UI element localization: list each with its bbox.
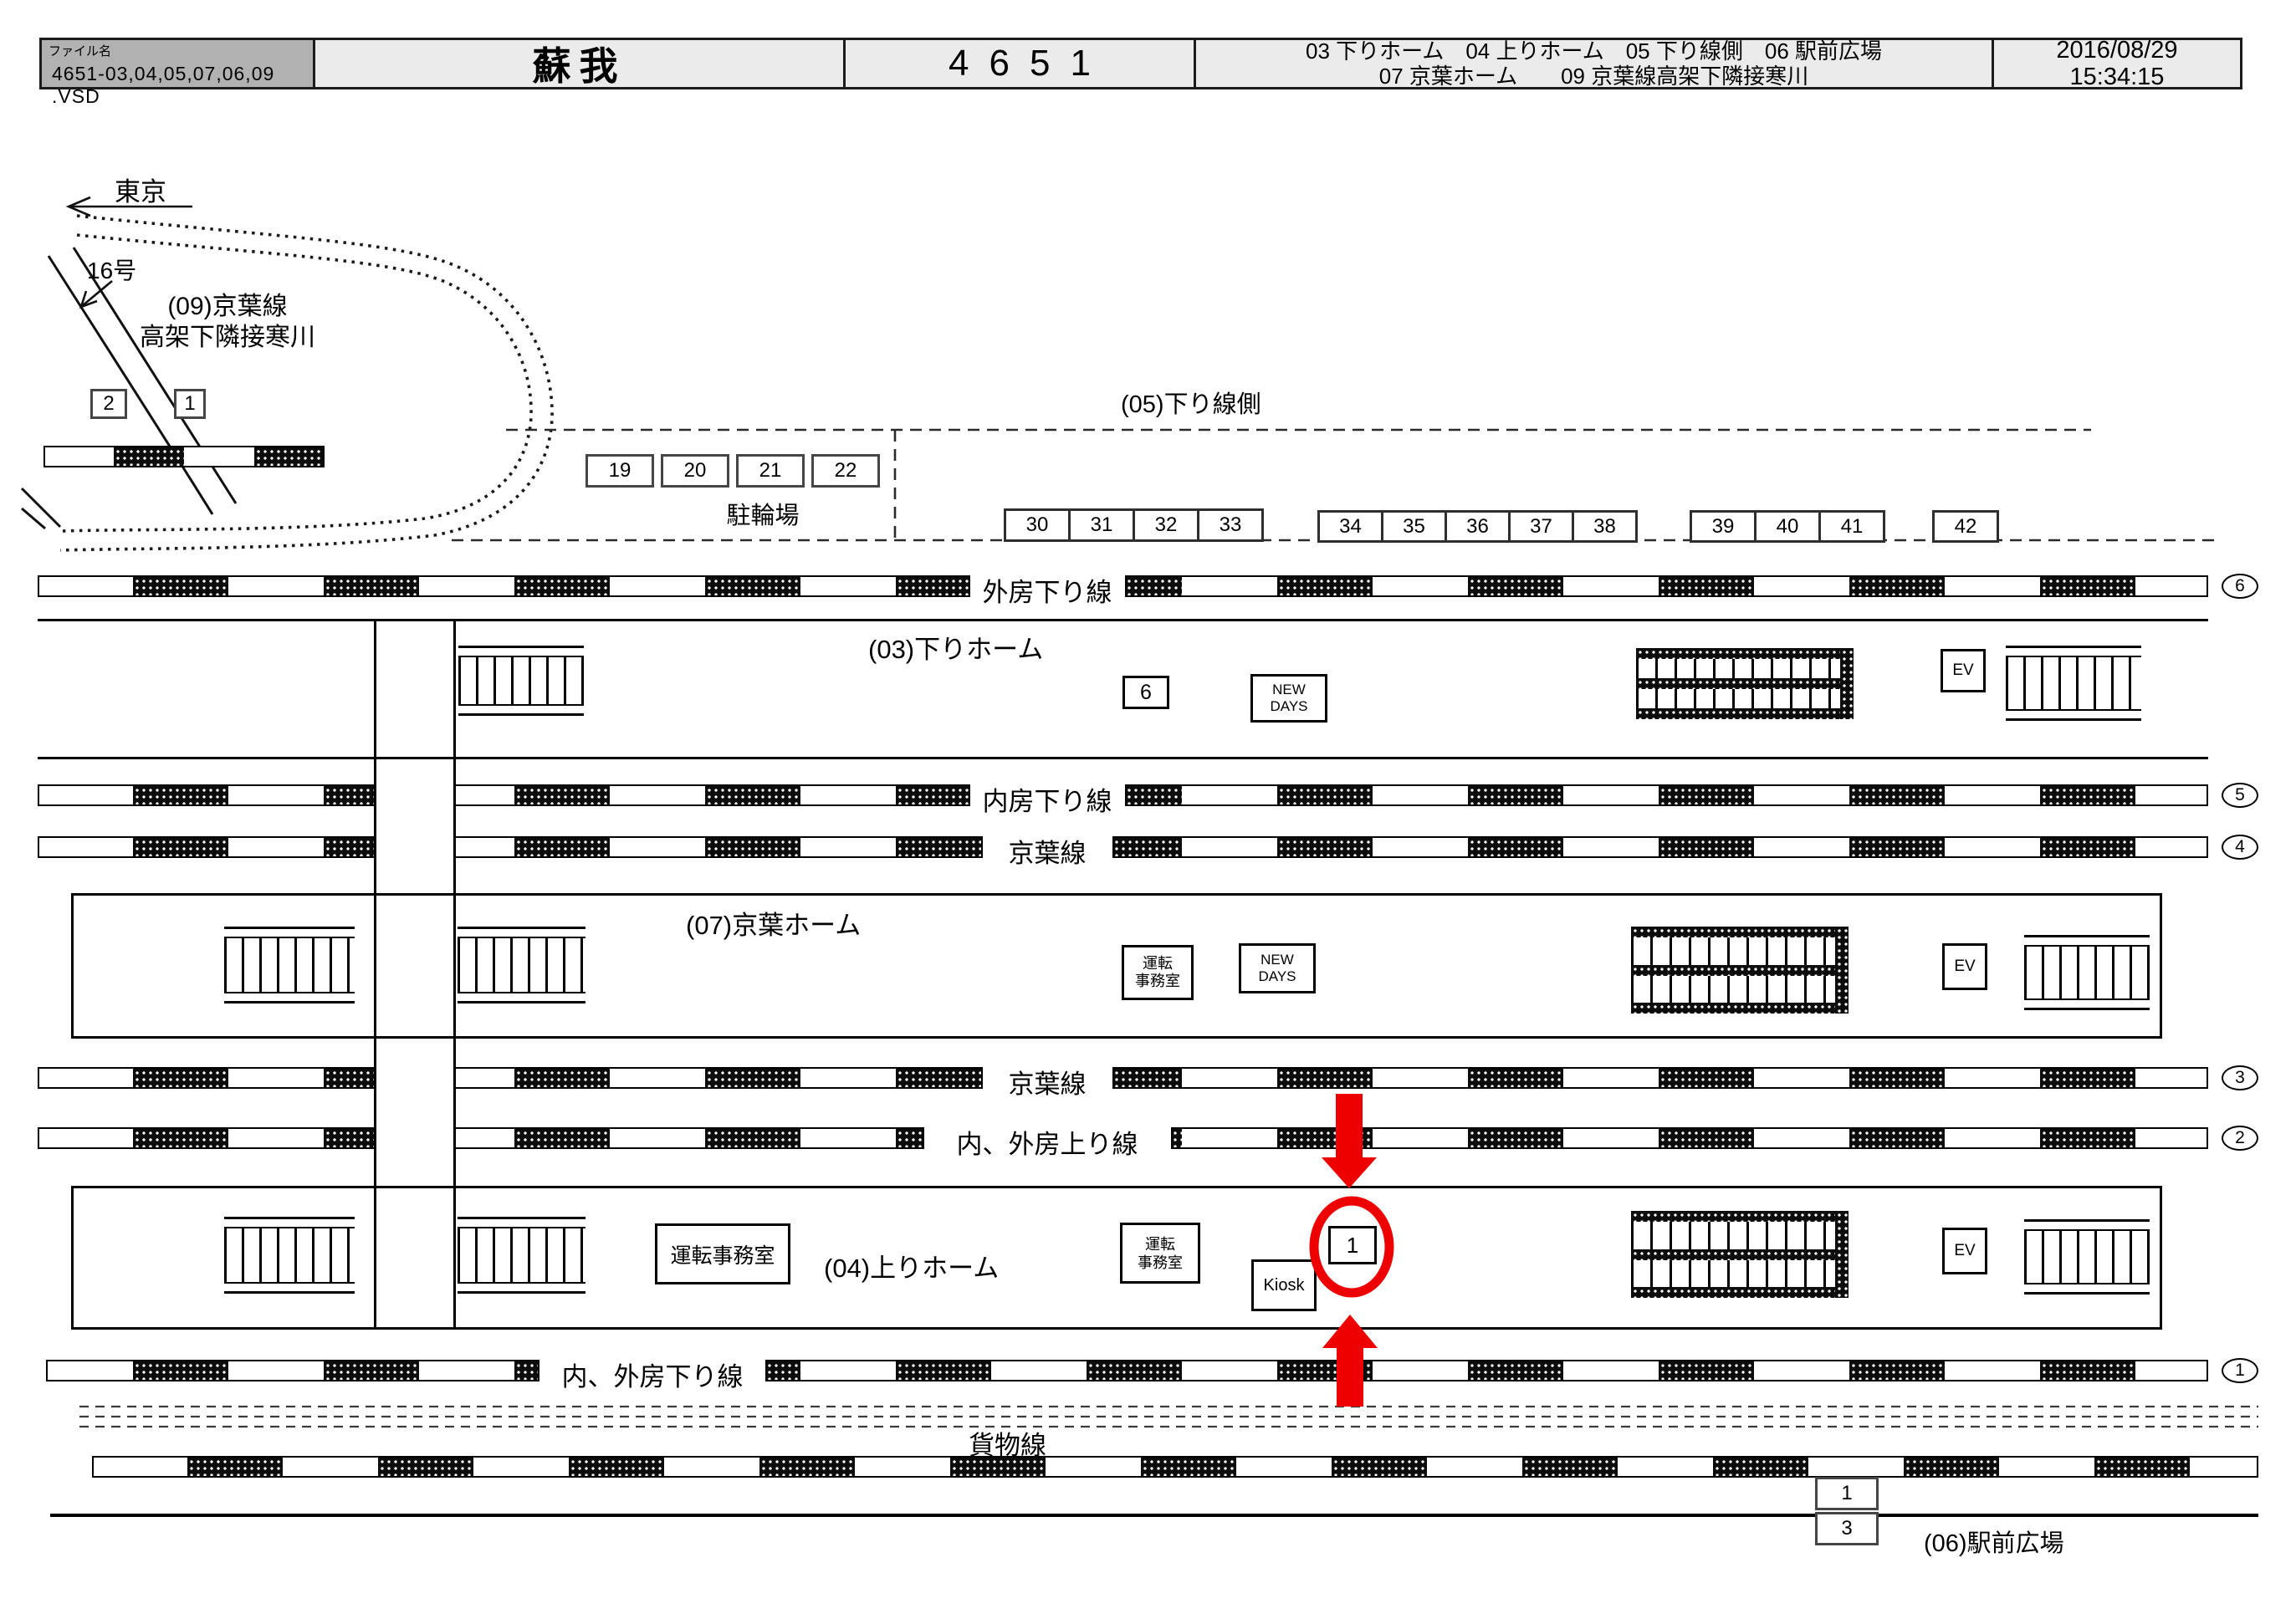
red-arrow-down	[1322, 1094, 1377, 1188]
highlight-layer	[0, 0, 2296, 1624]
station-layout-diagram: ファイル名 4651-03,04,05,07,06,09 .VSD 蘇我 465…	[0, 0, 2296, 1624]
red-arrow-up	[1322, 1315, 1378, 1407]
red-highlight-circle	[1314, 1201, 1389, 1293]
